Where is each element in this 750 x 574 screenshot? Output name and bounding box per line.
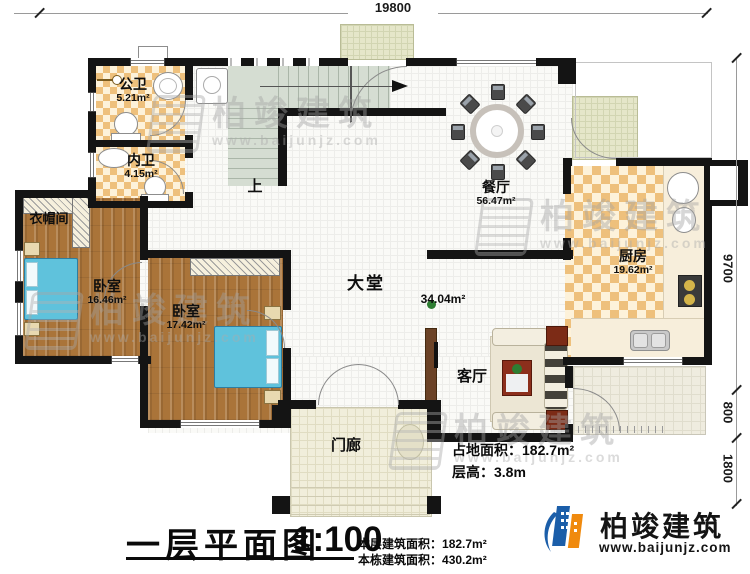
room-label-cloakroom: 衣帽间	[17, 212, 81, 227]
pillow	[26, 290, 38, 315]
site-area-value: 182.7m²	[522, 442, 574, 458]
kitchen-basin	[672, 207, 696, 233]
nightstand	[24, 322, 40, 336]
room-name: 公卫	[98, 76, 168, 92]
stove-burner	[684, 280, 695, 291]
room-area: 34.04m²	[408, 293, 478, 307]
title-underline	[126, 557, 354, 560]
sink-bowl	[633, 333, 648, 348]
stair-flight-lower	[228, 108, 278, 186]
up-text: 上	[242, 178, 268, 195]
sofa-bottom	[492, 412, 548, 430]
floor-area-value: 182.7m²	[442, 537, 487, 551]
room-label-bathroom1: 公卫 5.21m²	[98, 76, 168, 104]
room-area: 17.42m²	[153, 319, 219, 331]
sofa-top	[492, 328, 548, 346]
washing-machine-drum	[203, 76, 221, 94]
room-name: 厨房	[600, 248, 666, 264]
dimension-right-label-9700: 9700	[721, 244, 736, 294]
room-area-hall: 34.04m²	[408, 293, 478, 307]
room-label-hall: 大堂	[336, 274, 396, 294]
coffee-table-top	[506, 374, 528, 392]
dimension-right-label-1800: 1800	[721, 444, 736, 494]
dimension-width-label: 19800	[348, 0, 438, 15]
site-area-text: 占地面积：182.7m²	[452, 440, 574, 460]
room-area: 16.46m²	[74, 294, 140, 306]
brand-logo-icon	[538, 498, 596, 558]
room-label-bedroom2: 卧室 17.42m²	[153, 303, 219, 331]
floor-plan-canvas: 柏竣建筑 www.baijunjz.com 柏竣建筑 www.baijunjz.…	[0, 0, 750, 574]
entry-pad	[340, 24, 414, 60]
stair-path-line	[260, 86, 394, 87]
room-name: 衣帽间	[17, 212, 81, 227]
room-area: 56.47m²	[458, 195, 534, 207]
floor-area-label: 本层建筑面积：	[358, 537, 442, 551]
stove-burner	[684, 294, 695, 305]
dining-chair	[491, 84, 505, 100]
dimension-right-label-800: 800	[721, 388, 736, 438]
sink-bowl	[651, 333, 666, 348]
entry-door-leaf	[350, 66, 352, 122]
room-area: 19.62m²	[600, 264, 666, 276]
nightstand	[24, 242, 40, 256]
room-name: 大堂	[336, 274, 396, 294]
room-name: 门廊	[318, 437, 374, 454]
building-area-value: 430.2m²	[442, 553, 487, 567]
floor-area-text: 本层建筑面积：182.7m²	[358, 535, 487, 552]
room-label-kitchen: 厨房 19.62m²	[600, 248, 666, 276]
dining-chair	[451, 124, 465, 140]
building-area-label: 本栋建筑面积：	[358, 553, 442, 567]
floor-height-text: 层高：3.8m	[452, 462, 526, 482]
dining-table-center	[491, 125, 503, 137]
room-label-porch: 门廊	[318, 437, 374, 454]
room-label-dining: 餐厅 56.47m²	[458, 179, 534, 207]
side-cabinet	[546, 326, 568, 346]
room-name: 卧室	[153, 303, 219, 319]
floor-height-value: 3.8m	[494, 464, 526, 480]
room-area: 5.21m²	[98, 92, 168, 104]
room-label-bathroom2: 内卫 4.15m²	[106, 152, 176, 180]
room-area: 4.15m²	[106, 168, 176, 180]
pillow	[266, 358, 279, 384]
room-label-living: 客厅	[444, 368, 500, 385]
stair-direction-arrow	[392, 80, 408, 92]
room-label-bedroom1: 卧室 16.46m²	[74, 278, 140, 306]
bedroom2-wardrobe	[190, 258, 280, 276]
brand-url: www.baijunjz.com	[599, 540, 732, 555]
building-area-text: 本栋建筑面积：430.2m²	[358, 551, 487, 568]
floor-height-label: 层高：	[452, 464, 494, 480]
plant-icon	[512, 364, 522, 374]
pillow	[26, 262, 38, 287]
room-name: 客厅	[444, 368, 500, 385]
porch-plant	[396, 424, 424, 460]
dining-chair	[491, 164, 505, 180]
porch-steps	[290, 487, 430, 515]
site-area-label: 占地面积：	[452, 442, 522, 458]
room-name: 餐厅	[458, 179, 534, 195]
stair-landing	[228, 66, 278, 108]
stair-up-label: 上	[242, 178, 268, 195]
room-name: 内卫	[106, 152, 176, 168]
kitchen-sink-round	[667, 172, 699, 204]
room-name: 卧室	[74, 278, 140, 294]
brand-name: 柏竣建筑	[600, 505, 724, 545]
dining-chair	[531, 124, 545, 140]
tv-icon	[434, 342, 438, 368]
